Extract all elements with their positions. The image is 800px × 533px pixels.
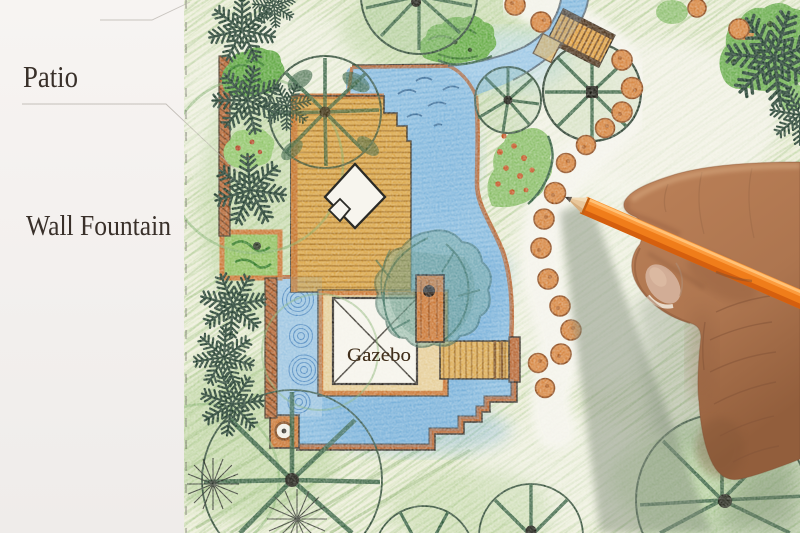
svg-text:Wall Fountain: Wall Fountain [26,210,171,242]
svg-text:Gazebo: Gazebo [347,345,411,366]
svg-text:Patio: Patio [23,59,78,94]
